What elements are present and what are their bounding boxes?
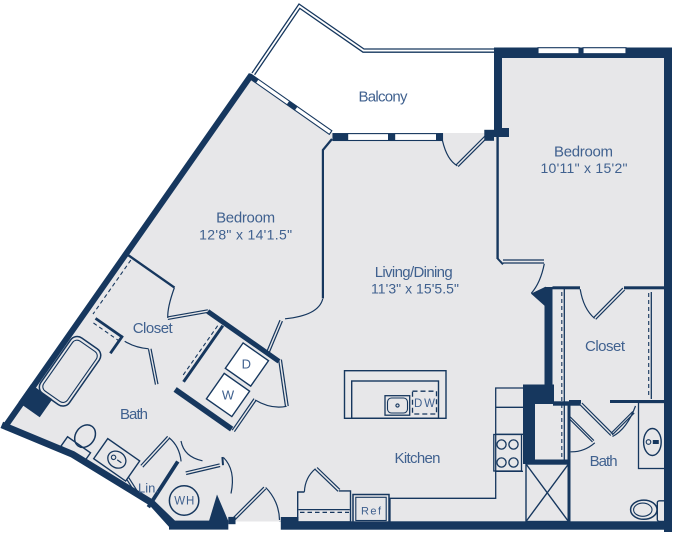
svg-text:Bath: Bath	[120, 406, 148, 423]
svg-text:Lin.: Lin.	[138, 481, 159, 496]
svg-text:Closet: Closet	[585, 338, 626, 355]
svg-text:D: D	[242, 357, 251, 372]
svg-text:Balcony: Balcony	[359, 89, 409, 106]
svg-text:Kitchen: Kitchen	[395, 450, 441, 467]
svg-text:WH: WH	[174, 495, 194, 507]
svg-text:Bedroom: Bedroom	[216, 210, 275, 227]
svg-text:10'11" x 15'2": 10'11" x 15'2"	[541, 160, 628, 176]
svg-text:Closet: Closet	[133, 320, 174, 337]
svg-text:W: W	[222, 388, 235, 403]
svg-text:DW: DW	[414, 398, 435, 410]
svg-text:Bath: Bath	[590, 453, 618, 470]
svg-text:12'8" x 14'1.5": 12'8" x 14'1.5"	[199, 227, 292, 243]
svg-text:Ref: Ref	[361, 506, 382, 518]
svg-text:Bedroom: Bedroom	[554, 144, 613, 161]
svg-text:11'3" x 15'5.5": 11'3" x 15'5.5"	[371, 281, 459, 297]
svg-text:Living/Dining: Living/Dining	[375, 264, 453, 281]
